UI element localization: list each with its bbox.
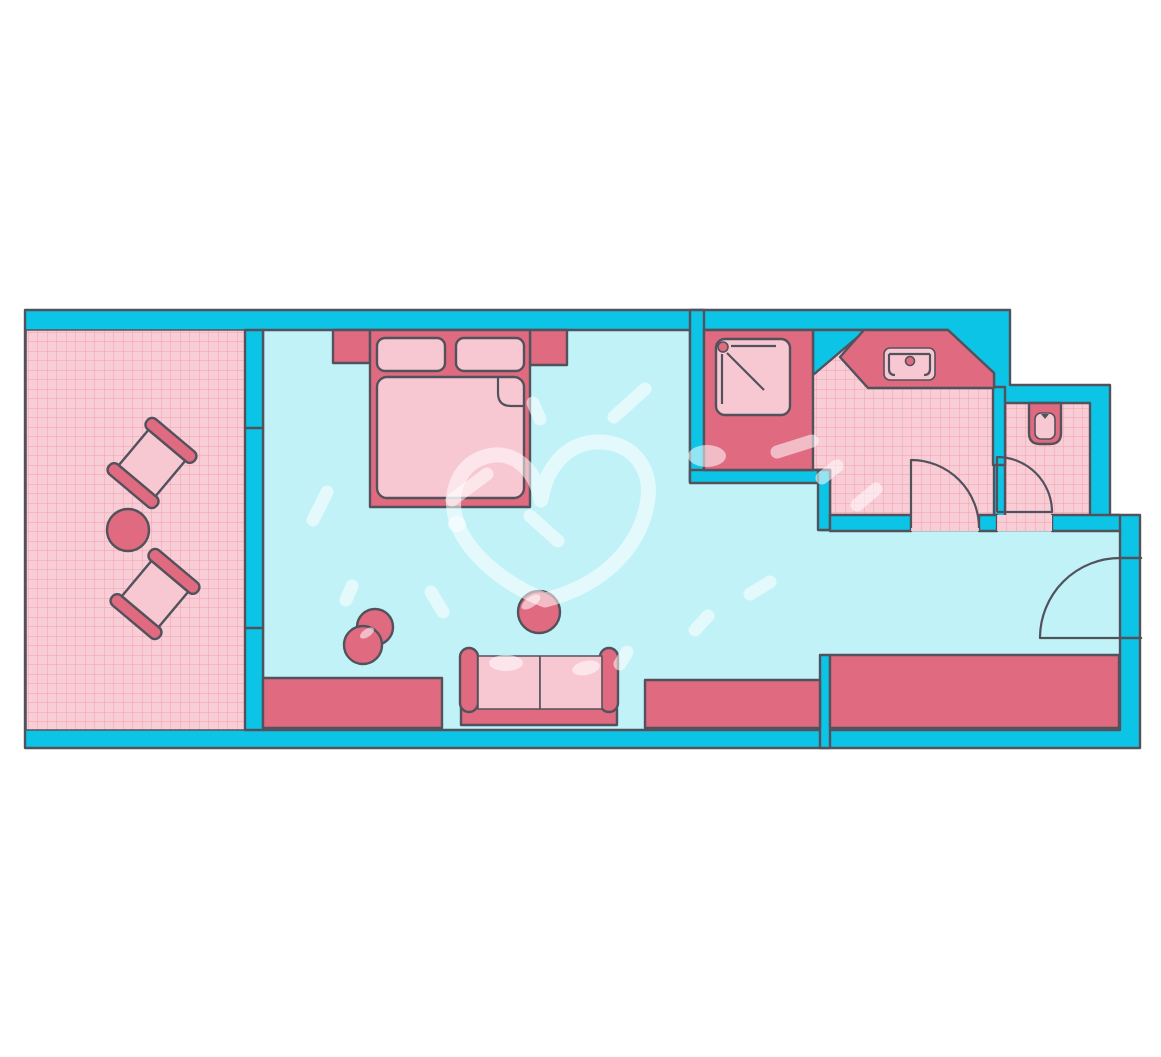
balcony-wall <box>245 330 263 730</box>
sink-faucet-dot <box>906 357 915 366</box>
sofa-base <box>461 708 617 725</box>
bathroom-south-wall-left <box>830 515 911 531</box>
sink <box>884 348 935 380</box>
shower-head-dot <box>718 342 728 352</box>
sofa <box>460 648 618 725</box>
bathroom-door-threshold <box>911 515 979 531</box>
entry-wall-stub <box>820 655 830 748</box>
dab <box>533 403 540 419</box>
toilet <box>1029 403 1061 444</box>
pillow-left <box>377 338 445 371</box>
sofa-armrest-left <box>460 648 478 712</box>
balcony-table <box>107 509 149 551</box>
bathroom-south-wall-mid <box>979 515 997 531</box>
wc-door-threshold <box>997 515 1052 531</box>
highlight <box>448 516 466 532</box>
sideboard-1 <box>263 678 442 728</box>
nightstand-left <box>333 330 370 363</box>
floor-plan-svg <box>0 0 1161 1057</box>
sofa-highlight <box>489 655 523 671</box>
bathroom-south-wall-right <box>1052 515 1120 531</box>
nightstand-right <box>530 330 567 365</box>
highlight <box>688 445 726 467</box>
floor-plan-canvas <box>0 0 1161 1057</box>
wardrobe <box>830 655 1119 728</box>
dab <box>346 586 352 600</box>
pillow-right <box>456 338 524 371</box>
dab <box>620 652 627 664</box>
sideboard-2 <box>645 680 820 728</box>
shower-bottom-wall <box>690 470 830 483</box>
bathroom-wc-wall <box>993 387 1005 465</box>
